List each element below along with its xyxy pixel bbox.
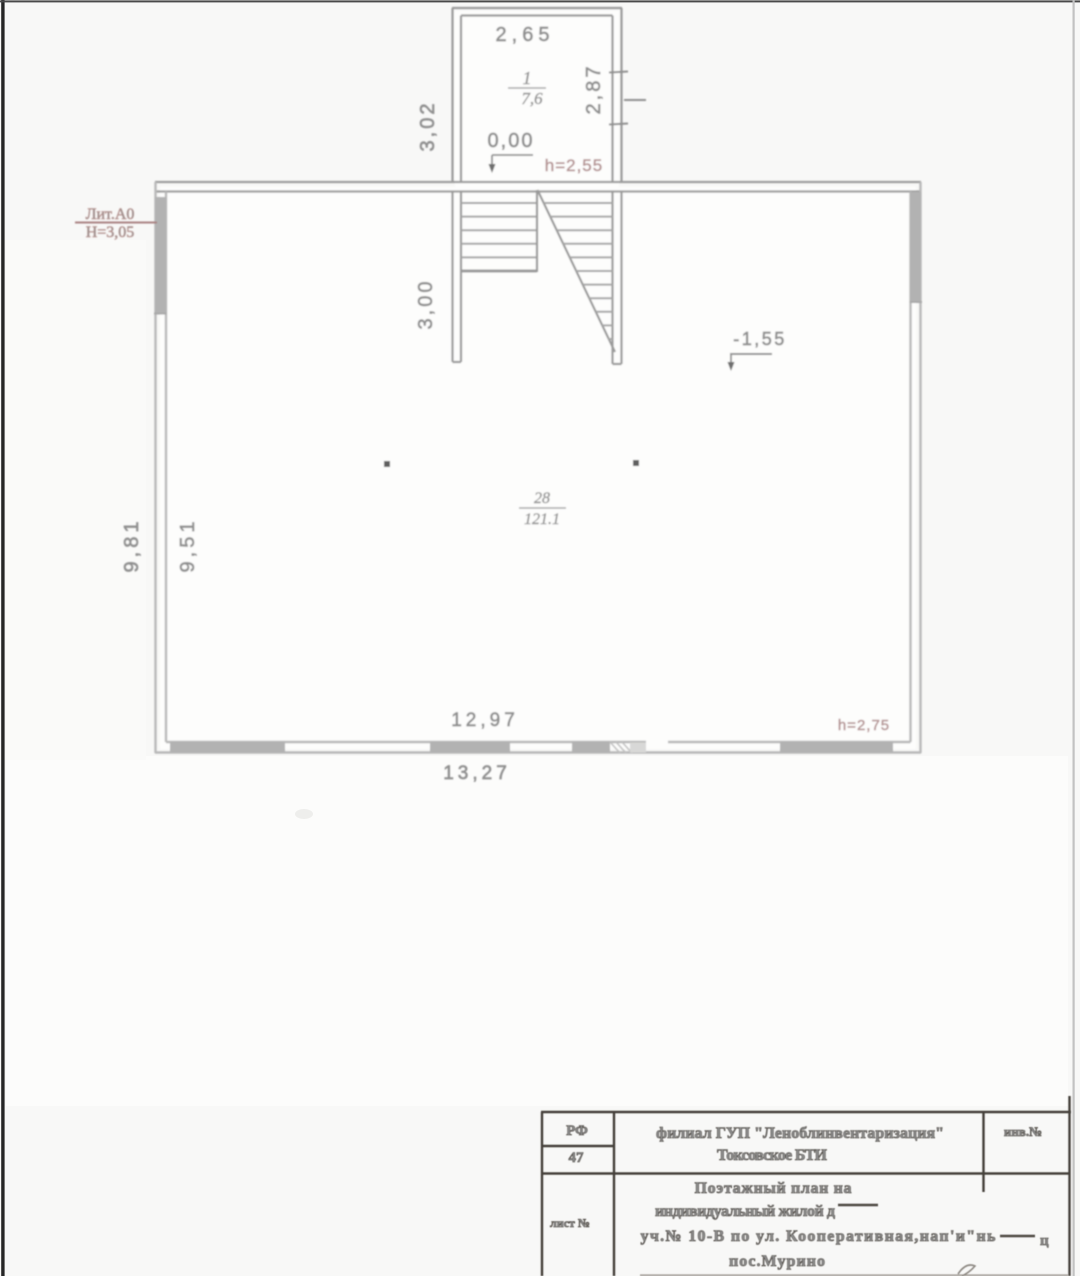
svg-text:РФ: РФ [566, 1123, 588, 1139]
svg-text:7,6: 7,6 [521, 89, 543, 108]
svg-text:-1,55: -1,55 [733, 329, 787, 349]
svg-text:12,97: 12,97 [451, 710, 519, 731]
svg-text:0,00: 0,00 [488, 130, 535, 152]
svg-text:h=2,55: h=2,55 [545, 156, 603, 175]
svg-text:Токсовское БТИ: Токсовское БТИ [717, 1147, 828, 1164]
svg-text:индивидуальный жилой д: индивидуальный жилой д [655, 1203, 835, 1220]
svg-text:Поэтажный план на: Поэтажный план на [695, 1180, 852, 1197]
svg-text:3,00: 3,00 [415, 279, 437, 330]
svg-text:1: 1 [523, 68, 532, 88]
svg-text:пос.Мурино: пос.Мурино [729, 1253, 825, 1270]
svg-text:3,02: 3,02 [417, 101, 439, 152]
svg-text:13,27: 13,27 [443, 763, 511, 784]
svg-text:ц: ц [1040, 1233, 1049, 1249]
svg-text:лист №: лист № [550, 1216, 590, 1230]
svg-text:уч.№ 10-В по ул. Кооперативная: уч.№ 10-В по ул. Кооперативная,нап'и"нь [641, 1228, 997, 1245]
svg-text:47: 47 [569, 1150, 585, 1166]
svg-text:121.1: 121.1 [524, 511, 560, 528]
svg-text:28: 28 [534, 490, 550, 507]
svg-text:инв.№: инв.№ [1004, 1124, 1042, 1139]
svg-text:9,51: 9,51 [177, 518, 199, 573]
svg-text:2,87: 2,87 [583, 64, 605, 115]
svg-text:2,65: 2,65 [496, 24, 555, 46]
svg-text:9,81: 9,81 [121, 518, 143, 573]
svg-text:Лит.А0: Лит.А0 [86, 206, 135, 223]
svg-text:h=2,75: h=2,75 [838, 717, 890, 734]
svg-text:Н=3,05: Н=3,05 [86, 224, 135, 241]
svg-text:филиал ГУП "Леноблинвентаризац: филиал ГУП "Леноблинвентаризация" [656, 1125, 944, 1142]
